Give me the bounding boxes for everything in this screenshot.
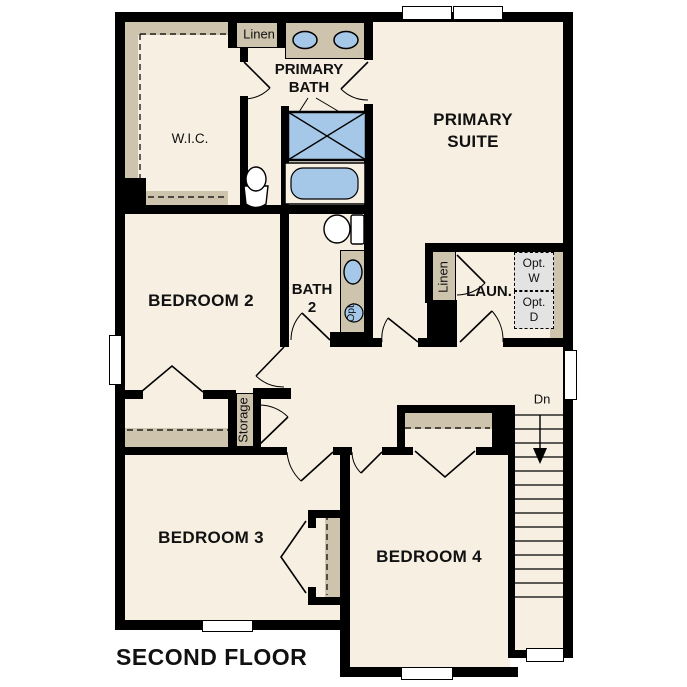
fixtures-overlay (0, 0, 687, 687)
room-label-primary-bath: PRIMARY BATH (275, 61, 344, 97)
optional-washer-label: Opt. W (523, 256, 546, 286)
optional-fixture-label: Opt. (345, 302, 357, 322)
floor-plan: W.I.C. Linen PRIMARY BATH PRIMARY SUITE … (0, 0, 687, 687)
room-label-wic: W.I.C. (172, 131, 209, 147)
room-label-bedroom3: BEDROOM 3 (158, 527, 264, 549)
room-label-primary-suite: PRIMARY SUITE (433, 109, 513, 153)
closet-label-linen-upper: Linen (243, 28, 275, 43)
label-line: D (523, 310, 546, 325)
closet-label-linen-laundry: Linen (437, 261, 452, 293)
stair-treads (515, 415, 563, 597)
room-label-bath2: BATH 2 (292, 281, 333, 317)
toilet-icon (324, 215, 364, 244)
room-label-laundry: LAUN. (466, 283, 512, 301)
label-line: 2 (292, 299, 333, 317)
label-pointer-line (299, 98, 338, 112)
sink-icon (293, 32, 358, 49)
label-line: Opt. (523, 295, 546, 310)
label-line: Opt. (523, 256, 546, 271)
shower-icon (288, 112, 366, 160)
closet-label-storage: Storage (237, 397, 252, 443)
label-line: PRIMARY (275, 61, 344, 79)
label-line: BATH (292, 281, 333, 299)
toilet-icon (244, 167, 268, 208)
label-line: PRIMARY (433, 109, 513, 131)
label-line: SUITE (433, 131, 513, 153)
label-line: W (523, 271, 546, 286)
room-label-bedroom4: BEDROOM 4 (376, 546, 482, 568)
optional-dryer-label: Opt. D (523, 295, 546, 325)
floor-plan-title: SECOND FLOOR (116, 644, 307, 670)
bathtub-icon (285, 163, 365, 204)
sink-icon (344, 260, 362, 284)
room-label-bedroom2: BEDROOM 2 (148, 290, 254, 312)
label-line: BATH (275, 79, 344, 97)
stairs-dn-label: Dn (534, 393, 551, 408)
